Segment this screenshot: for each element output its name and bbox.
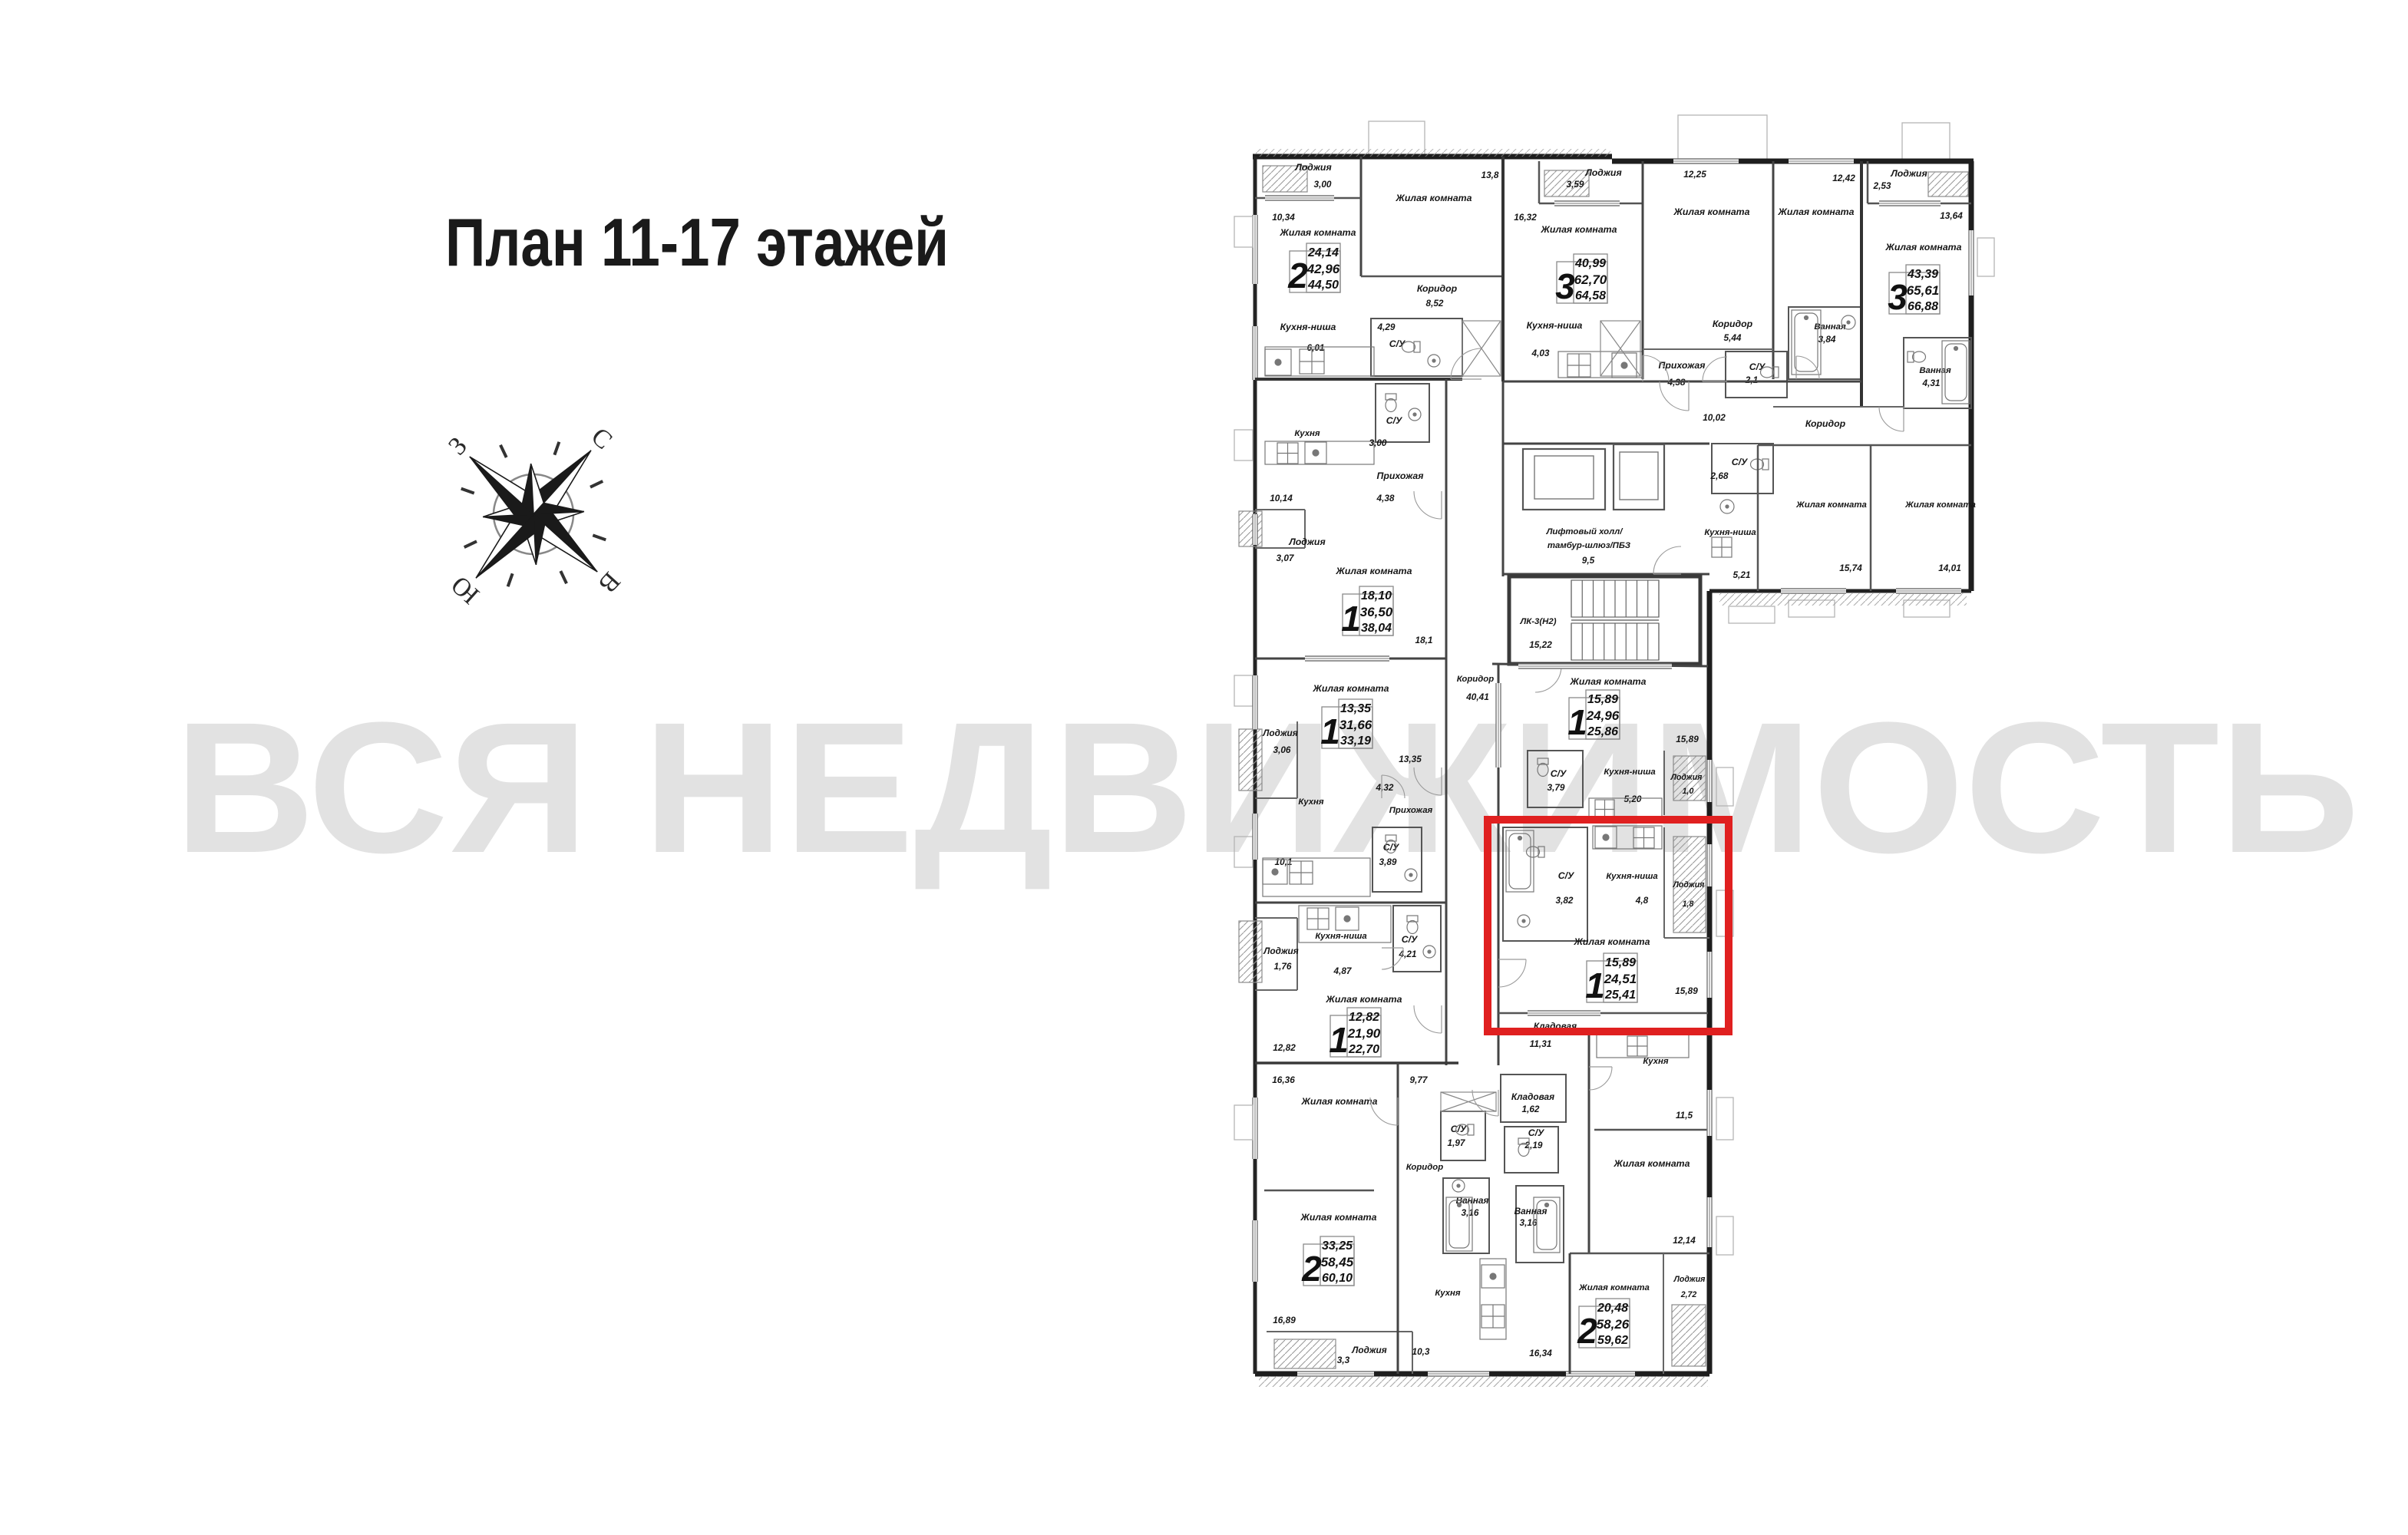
svg-text:Лоджия: Лоджия — [1890, 168, 1927, 179]
svg-text:3: 3 — [1888, 277, 1908, 317]
svg-text:1,0: 1,0 — [1683, 787, 1694, 796]
svg-text:64,58: 64,58 — [1575, 289, 1606, 302]
svg-text:3: 3 — [1555, 266, 1575, 306]
svg-text:Кладовая: Кладовая — [1511, 1091, 1554, 1102]
svg-text:Кухня-ниша: Кухня-ниша — [1527, 320, 1583, 331]
svg-text:ВСЯ НЕДВИЖИМОСТЬ: ВСЯ НЕДВИЖИМОСТЬ — [174, 684, 2360, 892]
svg-text:33,19: 33,19 — [1340, 734, 1371, 748]
svg-text:9,77: 9,77 — [1410, 1074, 1429, 1085]
svg-text:58,45: 58,45 — [1321, 1255, 1354, 1269]
svg-text:3,79: 3,79 — [1548, 782, 1565, 793]
svg-text:24,14: 24,14 — [1307, 246, 1339, 259]
svg-text:15,89: 15,89 — [1587, 693, 1618, 706]
svg-text:С/У: С/У — [1732, 457, 1749, 467]
svg-text:Жилая комната: Жилая комната — [1885, 242, 1962, 253]
svg-text:20,48: 20,48 — [1597, 1302, 1628, 1315]
svg-text:40,99: 40,99 — [1574, 257, 1606, 270]
svg-text:С/У: С/У — [1558, 870, 1575, 881]
svg-text:3,00: 3,00 — [1314, 179, 1332, 190]
svg-text:24,51: 24,51 — [1604, 972, 1637, 986]
svg-text:Кухня-ниша: Кухня-ниша — [1606, 872, 1657, 881]
svg-text:Жилая комната: Жилая комната — [1336, 566, 1412, 576]
svg-text:43,39: 43,39 — [1907, 268, 1938, 281]
svg-text:4,29: 4,29 — [1377, 322, 1396, 332]
svg-text:Жилая комната: Жилая комната — [1280, 227, 1356, 238]
svg-text:Кухня-ниша: Кухня-ниша — [1604, 767, 1655, 777]
svg-text:Лоджия: Лоджия — [1294, 162, 1332, 173]
svg-text:Жилая комната: Жилая комната — [1313, 683, 1389, 694]
svg-text:Коридор: Коридор — [1713, 319, 1753, 329]
svg-text:5,44: 5,44 — [1724, 332, 1742, 343]
svg-text:12,82: 12,82 — [1349, 1011, 1379, 1024]
svg-text:Жилая комната: Жилая комната — [1574, 936, 1650, 947]
svg-text:Кухня: Кухня — [1643, 1057, 1669, 1066]
svg-text:Жилая комната: Жилая комната — [1326, 994, 1402, 1005]
svg-text:3,07: 3,07 — [1277, 553, 1295, 563]
svg-text:3,06: 3,06 — [1273, 744, 1291, 755]
svg-text:Кухня: Кухня — [1435, 1289, 1461, 1298]
svg-text:10,14: 10,14 — [1270, 493, 1293, 503]
svg-text:Прихожая: Прихожая — [1389, 806, 1433, 815]
svg-text:5,20: 5,20 — [1624, 794, 1642, 804]
svg-text:Жилая комната: Жилая комната — [1541, 224, 1617, 235]
svg-text:Кухня-ниша: Кухня-ниша — [1315, 932, 1366, 941]
svg-text:Ванная: Ванная — [1919, 366, 1951, 375]
svg-text:Кухня-ниша: Кухня-ниша — [1280, 322, 1336, 332]
svg-text:2,72: 2,72 — [1680, 1290, 1697, 1299]
svg-text:3,00: 3,00 — [1369, 437, 1387, 448]
svg-text:3,16: 3,16 — [1462, 1207, 1479, 1218]
svg-text:15,89: 15,89 — [1605, 956, 1636, 969]
svg-text:План 11-17 этажей: План 11-17 этажей — [445, 204, 949, 280]
svg-text:Лифтовый холл/: Лифтовый холл/ — [1546, 527, 1624, 536]
svg-text:13,35: 13,35 — [1340, 702, 1372, 715]
svg-text:Коридор: Коридор — [1805, 418, 1846, 429]
svg-text:Коридор: Коридор — [1417, 283, 1458, 294]
svg-text:Лоджия: Лоджия — [1584, 167, 1622, 178]
svg-text:25,41: 25,41 — [1604, 989, 1636, 1002]
svg-text:66,88: 66,88 — [1908, 300, 1938, 313]
svg-text:2: 2 — [1287, 256, 1308, 295]
svg-text:44,50: 44,50 — [1307, 279, 1339, 292]
svg-text:Кухня: Кухня — [1294, 429, 1320, 438]
svg-text:33,25: 33,25 — [1322, 1240, 1353, 1253]
svg-text:С/У: С/У — [1386, 415, 1403, 426]
svg-text:16,32: 16,32 — [1514, 212, 1537, 223]
svg-text:11,5: 11,5 — [1676, 1110, 1693, 1121]
svg-text:4,03: 4,03 — [1531, 348, 1550, 358]
svg-text:Лоджия: Лоджия — [1288, 536, 1326, 547]
svg-text:21,90: 21,90 — [1347, 1026, 1381, 1041]
svg-text:4,32: 4,32 — [1376, 782, 1394, 793]
svg-text:9,5: 9,5 — [1582, 555, 1595, 566]
svg-text:38,04: 38,04 — [1361, 622, 1392, 635]
svg-text:65,61: 65,61 — [1907, 283, 1940, 298]
svg-text:4,8: 4,8 — [1635, 895, 1649, 906]
svg-text:1: 1 — [1585, 966, 1605, 1005]
svg-text:Лоджия: Лоджия — [1262, 728, 1297, 738]
svg-text:60,10: 60,10 — [1322, 1272, 1353, 1285]
svg-text:тамбур-шлюз/ПБЗ: тамбур-шлюз/ПБЗ — [1548, 541, 1631, 550]
svg-text:10,02: 10,02 — [1703, 412, 1726, 423]
svg-text:59,62: 59,62 — [1597, 1334, 1628, 1347]
svg-text:С/У: С/У — [1551, 768, 1567, 779]
svg-text:16,89: 16,89 — [1273, 1315, 1296, 1325]
svg-text:16,36: 16,36 — [1272, 1074, 1295, 1085]
svg-text:С/У: С/У — [1749, 361, 1766, 372]
svg-text:3,59: 3,59 — [1567, 179, 1584, 190]
svg-text:Жилая комната: Жилая комната — [1396, 193, 1472, 203]
svg-text:40,41: 40,41 — [1465, 692, 1489, 702]
svg-text:1: 1 — [1320, 711, 1340, 751]
svg-text:8,52: 8,52 — [1426, 298, 1444, 309]
svg-text:Лоджия: Лоджия — [1263, 946, 1298, 956]
svg-text:3,3: 3,3 — [1337, 1355, 1350, 1365]
svg-text:3,89: 3,89 — [1379, 857, 1397, 867]
svg-text:1,62: 1,62 — [1522, 1104, 1540, 1114]
svg-text:13,64: 13,64 — [1940, 210, 1963, 221]
svg-text:2,68: 2,68 — [1710, 470, 1729, 481]
svg-text:42,96: 42,96 — [1306, 262, 1340, 276]
svg-text:13,8: 13,8 — [1481, 170, 1499, 180]
svg-text:1,76: 1,76 — [1274, 961, 1292, 972]
svg-text:Коридор: Коридор — [1406, 1163, 1443, 1172]
svg-text:Жилая комната: Жилая комната — [1614, 1158, 1690, 1169]
svg-text:Жилая комната: Жилая комната — [1300, 1212, 1377, 1223]
svg-text:62,70: 62,70 — [1574, 272, 1607, 287]
svg-text:3,82: 3,82 — [1556, 895, 1574, 906]
svg-text:6,01: 6,01 — [1307, 342, 1325, 353]
svg-text:1,8: 1,8 — [1683, 900, 1694, 909]
svg-text:Кухня-ниша: Кухня-ниша — [1704, 528, 1756, 537]
svg-text:14,01: 14,01 — [1938, 563, 1961, 573]
svg-text:2,1: 2,1 — [1745, 375, 1758, 385]
svg-text:Жилая комната: Жилая комната — [1904, 500, 1976, 510]
svg-text:15,89: 15,89 — [1675, 985, 1698, 996]
svg-text:4,31: 4,31 — [1922, 378, 1941, 388]
svg-text:ЛК-3(Н2): ЛК-3(Н2) — [1519, 617, 1556, 626]
svg-text:18,1: 18,1 — [1415, 635, 1433, 645]
svg-text:1,97: 1,97 — [1448, 1137, 1466, 1148]
svg-text:5,21: 5,21 — [1733, 569, 1751, 580]
svg-text:15,89: 15,89 — [1676, 734, 1699, 744]
svg-text:1: 1 — [1329, 1020, 1349, 1060]
svg-text:22,70: 22,70 — [1348, 1043, 1379, 1056]
svg-text:Прихожая: Прихожая — [1376, 470, 1424, 481]
svg-text:Лоджия: Лоджия — [1673, 880, 1706, 890]
svg-text:58,26: 58,26 — [1597, 1317, 1630, 1332]
svg-text:18,10: 18,10 — [1361, 589, 1392, 602]
svg-text:Ванная: Ванная — [1514, 1206, 1548, 1216]
svg-text:12,25: 12,25 — [1683, 169, 1706, 180]
svg-text:Жилая комната: Жилая комната — [1570, 676, 1647, 687]
svg-text:16,34: 16,34 — [1529, 1348, 1552, 1358]
svg-text:4,87: 4,87 — [1333, 966, 1353, 976]
svg-text:12,14: 12,14 — [1673, 1235, 1696, 1246]
svg-text:24,96: 24,96 — [1586, 708, 1620, 723]
svg-text:1: 1 — [1341, 599, 1361, 639]
svg-text:36,50: 36,50 — [1360, 605, 1393, 619]
svg-text:12,82: 12,82 — [1273, 1042, 1296, 1053]
svg-text:13,35: 13,35 — [1399, 754, 1422, 764]
svg-text:10,34: 10,34 — [1272, 212, 1295, 223]
svg-text:11,31: 11,31 — [1530, 1038, 1552, 1049]
svg-text:2,53: 2,53 — [1873, 180, 1891, 191]
svg-text:Жилая комната: Жилая комната — [1778, 206, 1855, 217]
svg-text:Жилая комната: Жилая комната — [1673, 206, 1750, 217]
svg-text:1: 1 — [1567, 702, 1587, 742]
svg-text:2: 2 — [1301, 1249, 1322, 1289]
svg-text:Жилая комната: Жилая комната — [1301, 1096, 1378, 1107]
svg-text:2: 2 — [1577, 1311, 1597, 1351]
svg-text:Лоджия: Лоджия — [1670, 773, 1703, 782]
svg-text:Лоджия: Лоджия — [1351, 1345, 1386, 1355]
svg-text:31,66: 31,66 — [1339, 718, 1372, 732]
svg-text:Лоджия: Лоджия — [1673, 1275, 1706, 1284]
svg-text:4,38: 4,38 — [1376, 493, 1395, 503]
svg-text:10,3: 10,3 — [1412, 1346, 1430, 1357]
svg-text:Жилая комната: Жилая комната — [1578, 1283, 1650, 1292]
svg-text:Кухня: Кухня — [1298, 797, 1324, 807]
svg-text:12,42: 12,42 — [1832, 173, 1855, 183]
svg-text:15,74: 15,74 — [1839, 563, 1862, 573]
svg-text:С/У: С/У — [1402, 934, 1419, 945]
svg-text:Коридор: Коридор — [1457, 675, 1494, 684]
svg-text:15,22: 15,22 — [1529, 639, 1552, 650]
svg-text:3,16: 3,16 — [1520, 1217, 1538, 1228]
svg-text:С/У: С/У — [1528, 1127, 1545, 1138]
svg-text:Жилая комната: Жилая комната — [1795, 500, 1867, 510]
svg-text:25,86: 25,86 — [1587, 725, 1618, 738]
